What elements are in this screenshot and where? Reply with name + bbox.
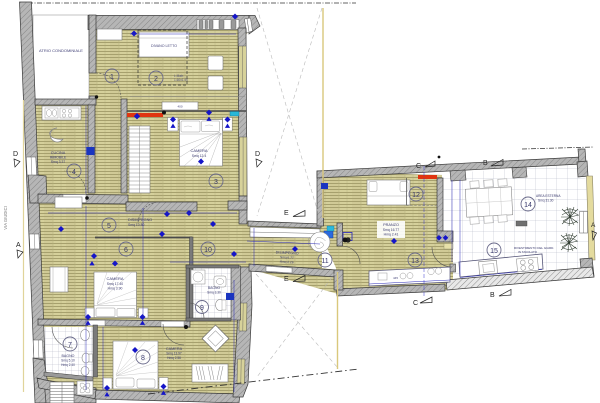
- svg-text:VIA GIUDICI: VIA GIUDICI: [3, 206, 8, 230]
- svg-text:Smq 16.77: Smq 16.77: [383, 228, 400, 232]
- svg-text:CAMERA: CAMERA: [106, 276, 123, 281]
- svg-text:ATRIO CONDOMINIALE: ATRIO CONDOMINIALE: [39, 48, 83, 53]
- svg-text:CUCINA: CUCINA: [51, 151, 66, 155]
- svg-text:BAGNO: BAGNO: [208, 286, 221, 290]
- svg-text:Smq 10.80: Smq 10.80: [128, 223, 145, 227]
- svg-text:E: E: [284, 276, 289, 283]
- svg-text:400: 400: [177, 105, 182, 109]
- svg-text:Hmq 2.41: Hmq 2.41: [384, 233, 399, 237]
- svg-text:4: 4: [72, 169, 76, 176]
- svg-text:Smq 17.40: Smq 17.40: [107, 282, 124, 286]
- svg-text:Smq 13.97: Smq 13.97: [166, 352, 182, 356]
- svg-text:Smq 12.4: Smq 12.4: [192, 154, 207, 158]
- svg-text:D: D: [255, 151, 260, 158]
- svg-text:8: 8: [141, 355, 145, 362]
- svg-text:BAGNO: BAGNO: [62, 354, 75, 358]
- svg-text:9: 9: [200, 305, 204, 312]
- svg-text:Smq 5.10: Smq 5.10: [61, 359, 75, 363]
- svg-text:PRANZO: PRANZO: [383, 223, 399, 227]
- svg-text:3: 3: [214, 179, 218, 186]
- svg-text:10: 10: [204, 247, 212, 254]
- svg-text:Hmq 2.26: Hmq 2.26: [280, 260, 294, 265]
- svg-text:B: B: [483, 160, 488, 167]
- svg-text:Hmq 3.90: Hmq 3.90: [108, 287, 123, 291]
- svg-text:1.60x1.90: 1.60x1.90: [174, 78, 188, 82]
- svg-text:A: A: [16, 242, 21, 249]
- svg-text:Smq 31.30: Smq 31.30: [538, 199, 554, 203]
- svg-text:CAMERA: CAMERA: [166, 347, 183, 351]
- svg-text:5: 5: [107, 223, 111, 230]
- svg-text:6: 6: [124, 247, 128, 254]
- svg-text:D: D: [13, 151, 18, 158]
- svg-text:12: 12: [412, 192, 420, 199]
- svg-text:DIVANO LETTO: DIVANO LETTO: [151, 44, 177, 48]
- svg-text:CAMERA: CAMERA: [190, 148, 207, 153]
- svg-text:IN TAVOLATO: IN TAVOLATO: [518, 250, 538, 254]
- svg-text:C: C: [416, 163, 421, 170]
- svg-text:Hmq 2.56: Hmq 2.56: [167, 356, 181, 360]
- svg-text:E: E: [284, 210, 289, 217]
- svg-text:13: 13: [411, 258, 419, 265]
- svg-text:B: B: [490, 292, 495, 299]
- svg-text:445: 445: [393, 276, 398, 280]
- svg-text:7: 7: [68, 342, 72, 349]
- svg-text:IMMOBILE: IMMOBILE: [50, 156, 67, 160]
- svg-text:11: 11: [321, 258, 328, 265]
- svg-text:C: C: [413, 300, 418, 307]
- svg-text:Smq 3.37: Smq 3.37: [51, 160, 66, 164]
- svg-text:1: 1: [110, 74, 114, 81]
- svg-text:15: 15: [490, 248, 498, 255]
- svg-text:Smq 3.30: Smq 3.30: [207, 291, 221, 295]
- svg-text:DISIMPEGNO: DISIMPEGNO: [128, 218, 152, 222]
- svg-text:14: 14: [524, 202, 532, 209]
- svg-text:A: A: [591, 222, 596, 229]
- svg-text:2: 2: [154, 76, 158, 83]
- svg-text:AREA ESTERNA: AREA ESTERNA: [536, 194, 561, 198]
- svg-text:Hmq 2.40: Hmq 2.40: [61, 363, 75, 367]
